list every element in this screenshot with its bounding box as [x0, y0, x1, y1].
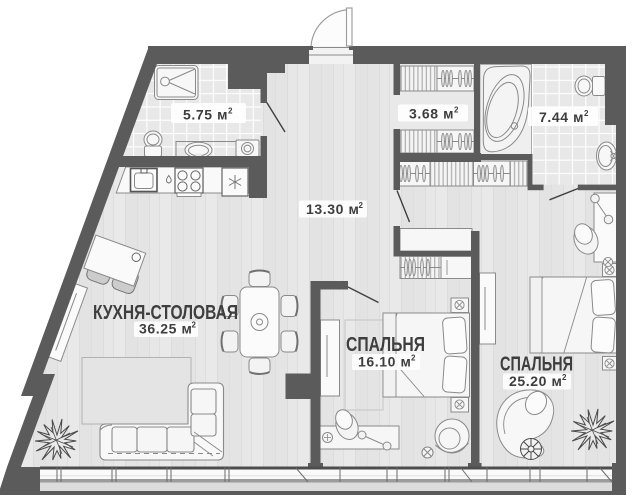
svg-text:13.30 м: 13.30 м: [306, 201, 359, 217]
svg-text:2: 2: [562, 373, 567, 382]
svg-text:5.75 м: 5.75 м: [183, 107, 228, 123]
svg-text:25.20 м: 25.20 м: [509, 373, 562, 389]
svg-text:3.68 м: 3.68 м: [409, 106, 454, 122]
svg-text:2: 2: [411, 354, 416, 363]
svg-text:2: 2: [454, 106, 459, 115]
svg-text:2: 2: [359, 201, 364, 210]
svg-text:36.25 м: 36.25 м: [139, 321, 192, 337]
svg-text:7.44 м: 7.44 м: [539, 109, 584, 125]
svg-text:2: 2: [192, 321, 197, 330]
svg-text:16.10 м: 16.10 м: [358, 354, 411, 370]
svg-text:2: 2: [228, 107, 233, 116]
svg-text:2: 2: [584, 109, 589, 118]
